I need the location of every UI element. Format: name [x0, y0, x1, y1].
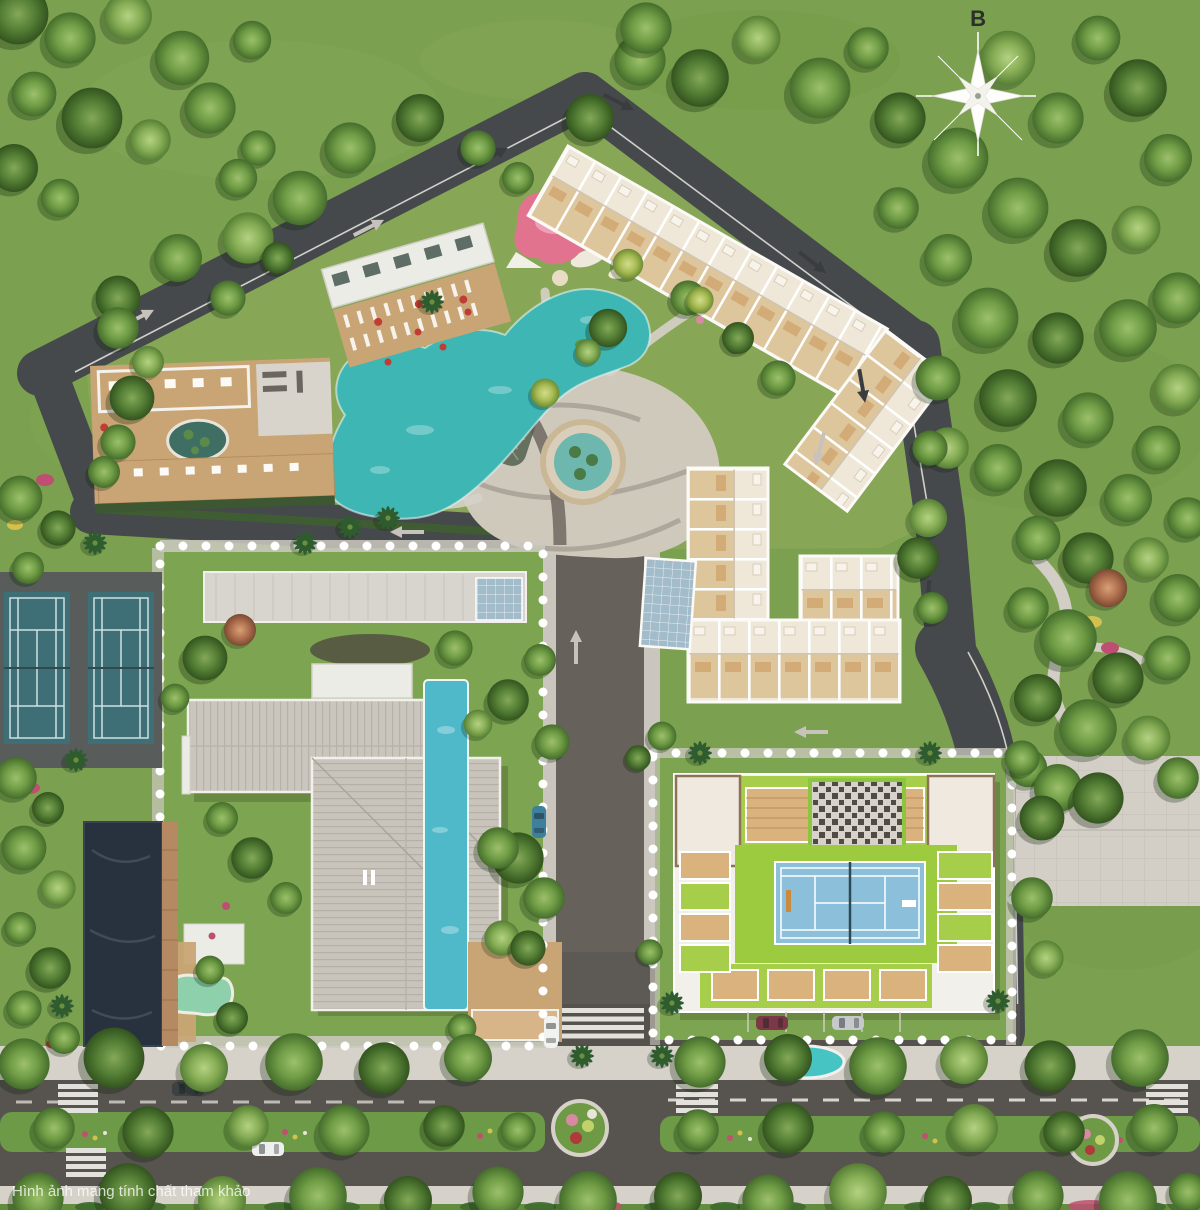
glass-atrium: [640, 558, 696, 649]
skylight: [476, 578, 522, 620]
deck-planter: [167, 419, 228, 461]
watermark: Hình ảnh mang tính chất tham khảo: [12, 1183, 250, 1200]
boardwalk: [162, 822, 178, 1046]
compass-north-label: B: [970, 6, 986, 31]
tennis-courts-ground: [0, 572, 162, 768]
car-white: [544, 1016, 558, 1048]
garden-pavilion: [312, 664, 412, 698]
circular-flower-bed: [553, 1101, 607, 1155]
site-plan-aerial: B Hình ảnh mang tính chất tham khảo: [0, 0, 1200, 1210]
car-silver: [832, 1016, 864, 1030]
fountain-pool: [554, 433, 612, 491]
car-blue: [532, 806, 546, 838]
car-maroon: [756, 1016, 788, 1030]
podium-building: [674, 774, 1000, 1020]
parcel-b: [650, 748, 1016, 1078]
entry-canopy: [204, 572, 526, 622]
masterplan-render: B Hình ảnh mang tính chất tham khảo: [0, 0, 1200, 1210]
reflection-pond: [84, 822, 178, 1046]
planting-bed: [310, 634, 430, 666]
